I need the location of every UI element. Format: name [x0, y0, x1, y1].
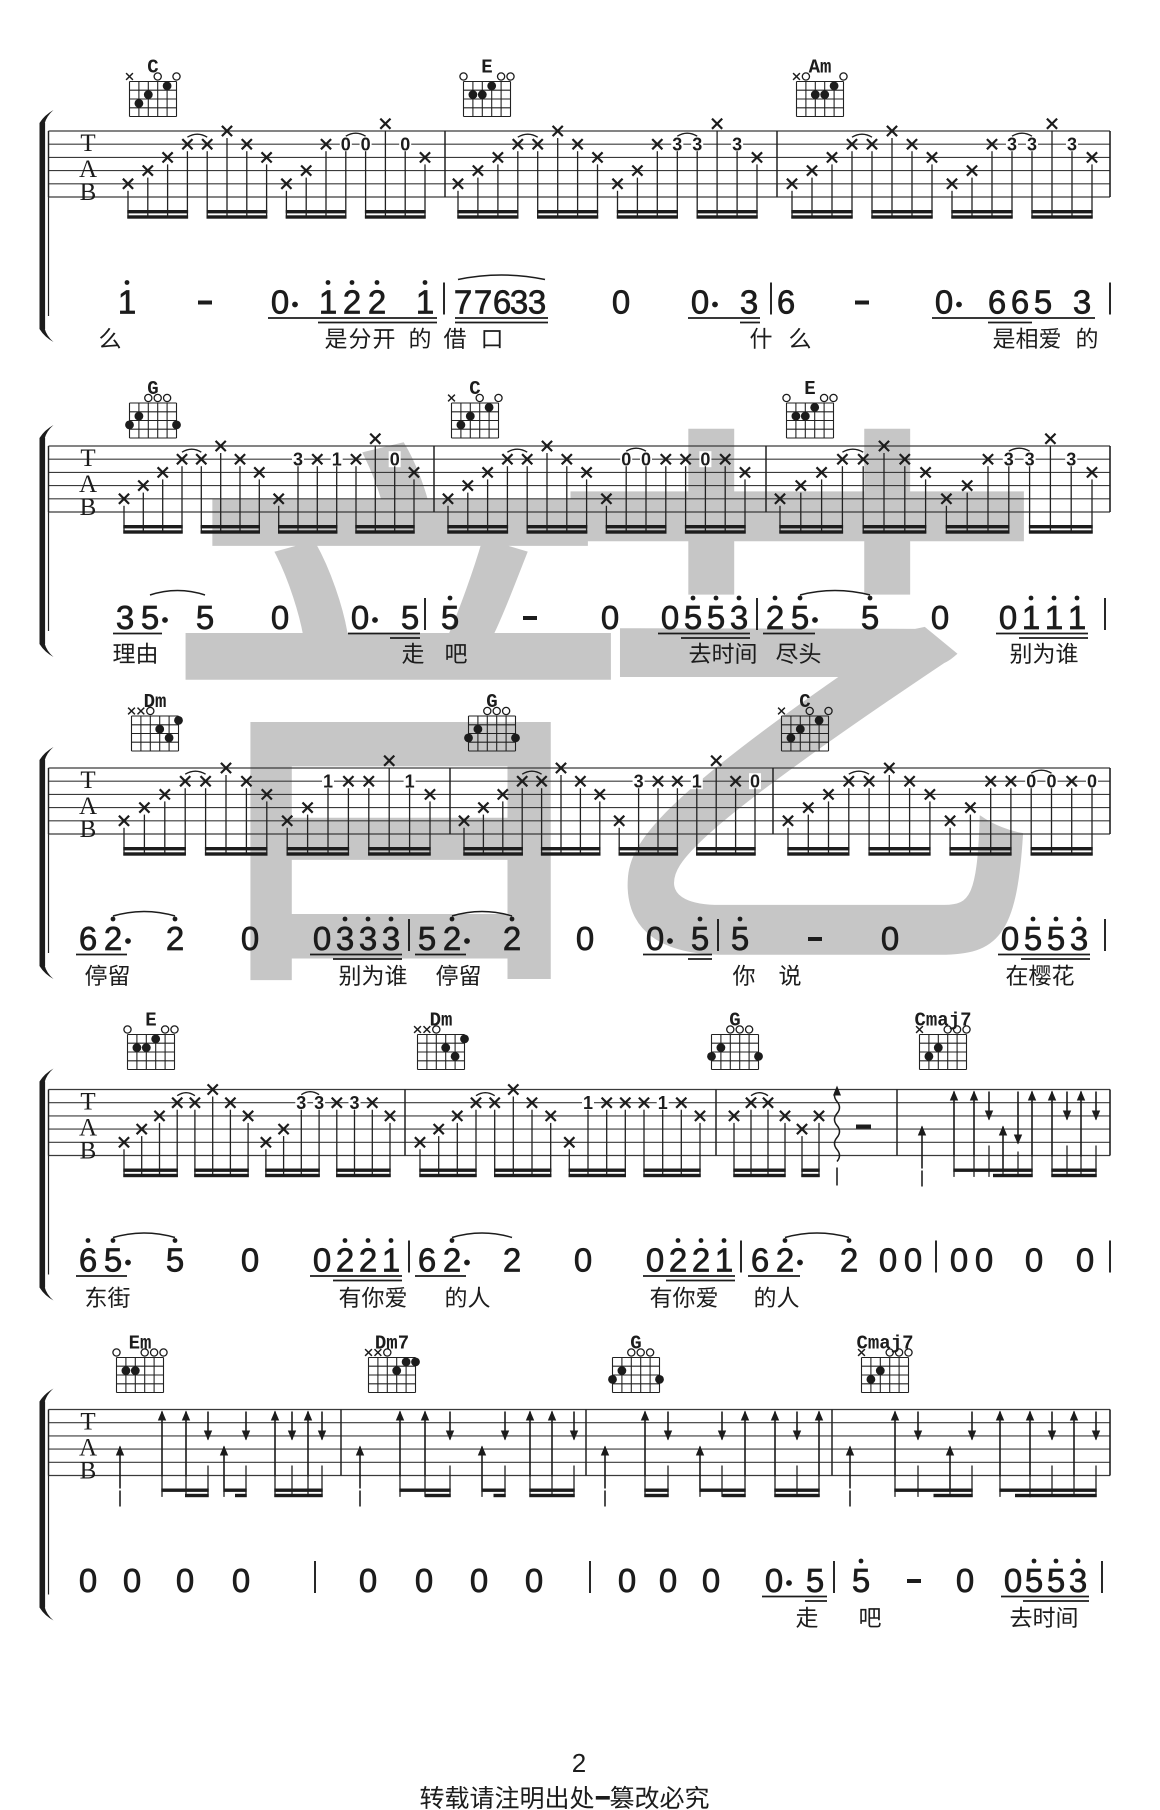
svg-text:0: 0	[271, 284, 289, 321]
svg-text:2: 2	[503, 1242, 521, 1279]
svg-text:1: 1	[382, 1242, 400, 1279]
svg-text:5: 5	[1025, 1562, 1043, 1599]
svg-text:0: 0	[1004, 1562, 1022, 1599]
svg-text:0: 0	[470, 1562, 488, 1599]
svg-text:2: 2	[336, 1242, 354, 1279]
svg-text:E: E	[145, 1010, 156, 1032]
svg-text:2: 2	[443, 920, 461, 957]
svg-text:0: 0	[1025, 1242, 1043, 1279]
svg-text:0: 0	[313, 920, 331, 957]
svg-text:0: 0	[765, 1562, 783, 1599]
svg-text:2: 2	[166, 920, 184, 957]
svg-text:0: 0	[659, 1562, 677, 1599]
svg-text:5: 5	[806, 1562, 824, 1599]
svg-text:0: 0	[879, 1242, 897, 1279]
svg-text:5: 5	[104, 1242, 122, 1279]
svg-text:0: 0	[359, 1562, 377, 1599]
svg-text:0: 0	[241, 1242, 259, 1279]
svg-text:7: 7	[454, 284, 472, 321]
svg-text:0: 0	[999, 599, 1017, 636]
svg-text:0: 0	[271, 599, 289, 636]
svg-text:G: G	[729, 1010, 740, 1032]
svg-text:0: 0	[123, 1562, 141, 1599]
svg-text:0: 0	[646, 1242, 664, 1279]
svg-text:6: 6	[79, 1242, 97, 1279]
svg-text:1: 1	[319, 284, 337, 321]
svg-text:B: B	[80, 179, 97, 206]
svg-text:2: 2	[359, 1242, 377, 1279]
svg-text:0: 0	[950, 1242, 968, 1279]
svg-text:0: 0	[935, 284, 953, 321]
svg-text:3: 3	[336, 920, 354, 957]
svg-text:1: 1	[416, 284, 434, 321]
svg-text:6: 6	[418, 1242, 436, 1279]
svg-text:5: 5	[196, 599, 214, 636]
svg-text:5: 5	[791, 599, 809, 636]
svg-text:0: 0	[691, 284, 709, 321]
svg-text:T: T	[80, 1089, 95, 1116]
svg-text:2: 2	[692, 1242, 710, 1279]
svg-text:B: B	[80, 1458, 97, 1485]
svg-text:E: E	[804, 378, 815, 400]
svg-text:2: 2	[343, 284, 361, 321]
svg-text:3: 3	[1073, 284, 1091, 321]
svg-text:5: 5	[441, 599, 459, 636]
svg-text:1: 1	[1068, 599, 1086, 636]
svg-text:Am: Am	[809, 57, 832, 79]
svg-text:5: 5	[691, 920, 709, 957]
svg-text:6: 6	[1011, 284, 1029, 321]
svg-text:5: 5	[731, 920, 749, 957]
svg-text:0: 0	[702, 1562, 720, 1599]
svg-text:5: 5	[166, 1242, 184, 1279]
svg-text:3: 3	[528, 284, 546, 321]
svg-text:3: 3	[740, 284, 758, 321]
svg-text:2: 2	[443, 1242, 461, 1279]
svg-text:G: G	[630, 1333, 641, 1355]
svg-text:2: 2	[776, 1242, 794, 1279]
svg-text:5: 5	[684, 599, 702, 636]
svg-text:2: 2	[669, 1242, 687, 1279]
svg-text:0: 0	[313, 1242, 331, 1279]
svg-text:T: T	[80, 445, 95, 472]
svg-text:T: T	[80, 130, 95, 157]
svg-text:2: 2	[503, 920, 521, 957]
svg-text:3: 3	[116, 599, 134, 636]
svg-text:0: 0	[612, 284, 630, 321]
svg-text:3: 3	[510, 284, 528, 321]
svg-text:G: G	[486, 691, 497, 713]
svg-text:0: 0	[1001, 920, 1019, 957]
svg-text:3: 3	[382, 920, 400, 957]
svg-text:0: 0	[881, 920, 899, 957]
svg-text:5: 5	[1047, 920, 1065, 957]
svg-text:2: 2	[368, 284, 386, 321]
svg-text:T: T	[80, 767, 95, 794]
svg-text:0: 0	[232, 1562, 250, 1599]
svg-text:C: C	[469, 378, 480, 400]
svg-text:3: 3	[359, 920, 377, 957]
svg-text:0: 0	[646, 920, 664, 957]
svg-text:5: 5	[1024, 920, 1042, 957]
svg-text:3: 3	[1069, 1562, 1087, 1599]
svg-text:G: G	[147, 378, 158, 400]
svg-text:5: 5	[401, 599, 419, 636]
svg-text:1: 1	[1045, 599, 1063, 636]
svg-text:1: 1	[1022, 599, 1040, 636]
svg-text:1: 1	[715, 1242, 733, 1279]
svg-text:0: 0	[176, 1562, 194, 1599]
svg-text:6: 6	[988, 284, 1006, 321]
svg-text:7: 7	[474, 284, 492, 321]
svg-text:0: 0	[975, 1242, 993, 1279]
svg-text:E: E	[481, 57, 492, 79]
svg-text:5: 5	[1034, 284, 1052, 321]
svg-text:B: B	[80, 816, 97, 843]
svg-text:0: 0	[904, 1242, 922, 1279]
svg-text:0: 0	[79, 1562, 97, 1599]
svg-text:0: 0	[661, 599, 679, 636]
svg-text:2: 2	[840, 1242, 858, 1279]
svg-text:C: C	[799, 691, 810, 713]
svg-text:6: 6	[493, 284, 511, 321]
svg-text:5: 5	[707, 599, 725, 636]
svg-text:2: 2	[572, 1748, 586, 1778]
svg-text:C: C	[147, 57, 158, 79]
svg-text:5: 5	[141, 599, 159, 636]
svg-text:0: 0	[415, 1562, 433, 1599]
svg-text:0: 0	[576, 920, 594, 957]
svg-text:T: T	[80, 1409, 95, 1436]
svg-text:3: 3	[1070, 920, 1088, 957]
svg-text:0: 0	[525, 1562, 543, 1599]
svg-text:2: 2	[766, 599, 784, 636]
svg-text:6: 6	[751, 1242, 769, 1279]
svg-text:6: 6	[79, 920, 97, 957]
svg-text:B: B	[80, 1138, 97, 1165]
svg-text:5: 5	[852, 1562, 870, 1599]
svg-text:5: 5	[418, 920, 436, 957]
svg-text:0: 0	[931, 599, 949, 636]
svg-text:6: 6	[777, 284, 795, 321]
svg-text:0: 0	[1076, 1242, 1094, 1279]
svg-text:0: 0	[956, 1562, 974, 1599]
svg-text:B: B	[80, 494, 97, 521]
svg-text:0: 0	[601, 599, 619, 636]
svg-text:0: 0	[574, 1242, 592, 1279]
svg-text:0: 0	[351, 599, 369, 636]
svg-text:0: 0	[241, 920, 259, 957]
svg-text:2: 2	[104, 920, 122, 957]
svg-text:0: 0	[618, 1562, 636, 1599]
svg-text:5: 5	[861, 599, 879, 636]
svg-text:1: 1	[118, 284, 136, 321]
svg-text:3: 3	[730, 599, 748, 636]
svg-text:5: 5	[1047, 1562, 1065, 1599]
